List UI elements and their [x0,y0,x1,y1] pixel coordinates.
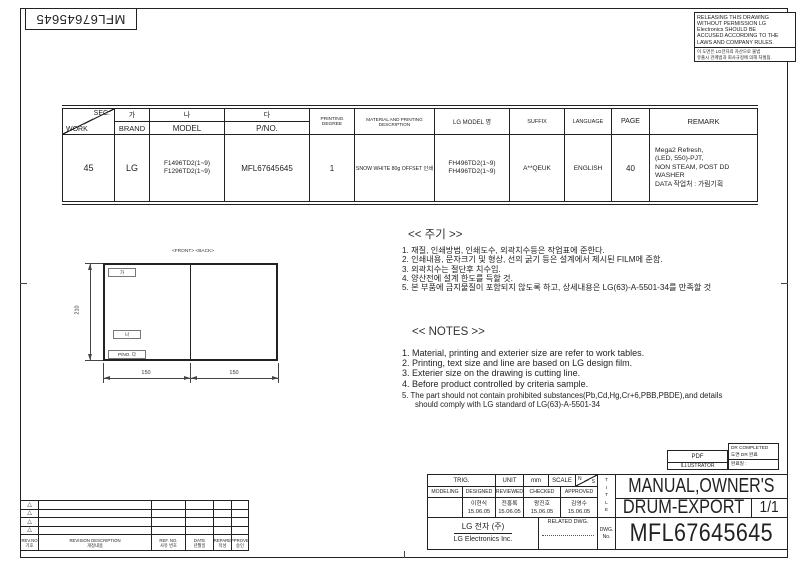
arrow-right-icon [184,376,190,380]
lg-model-header: LG MODEL 명 [435,109,510,135]
model-value: F1496TD2(1~9) F1296TD2(1~9) [150,135,225,201]
page-value: 40 [612,135,650,201]
remark-value: Mega2 Refresh, (LED, 550)-PJT, NON STEAM… [650,135,757,201]
scale-n: N [578,476,582,482]
lg-model-value: FH496TD2(1~9) FH496TD2(1~9) [435,135,510,201]
drawing-sheet: MFL67645645 RELEASING THIS DRAWING WITHO… [0,0,802,567]
dr-date-label: 완료일 : [729,460,778,468]
pno-ko-header: 다 [225,109,310,122]
panel-label-ga-box: 가 [108,268,136,277]
warning-line: LAWS AND COMPANY RULES. [697,40,793,46]
revision-cell [232,518,248,527]
title-vertical-label: T I T L E [598,475,616,518]
checked-header: CHECKED [524,487,561,498]
sheet-number-cell: 1/1 [752,499,787,518]
revision-marker-icon: △ [21,527,39,536]
rev-date-header: DATE 년월일 [186,535,214,550]
scale-header: SCALE [549,475,576,487]
width-dim-left-label: 150 [128,370,164,376]
frame-center-mark-left [20,283,27,284]
warning-box: RELEASING THIS DRAWING WITHOUT PERMISSIO… [694,12,796,62]
warning-english: RELEASING THIS DRAWING WITHOUT PERMISSIO… [695,13,795,48]
panel-label-pno-box: P/NO. 다 [108,350,146,359]
dim-line-vertical [90,264,91,360]
work-table: SEC. WORK 가 BRAND 나 MODEL 다 P/NO. PRINTI… [62,105,758,205]
doc-title-line1: MANUAL,OWNER'S [628,475,774,498]
frame-center-mark-bottom [404,551,405,558]
revision-cell [232,527,248,536]
remark-header: REMARK [650,109,757,135]
designed-header: DESIGNED [463,487,496,498]
language-value: ENGLISH [565,135,612,201]
note-ko-item: 5. 본 부품에 금지물질이 포함되지 않도록 하고, 상세내용은 LG(63)… [402,283,794,292]
revision-description-header: REVISION DESCRIPTION 개정내용 [39,535,152,550]
revision-marker-icon: △ [21,518,39,527]
page-header: PAGE [612,109,650,135]
note-ko-item: 3. 외곽치수는 절단후 치수임. [402,265,794,274]
material-header: MATERIAL AND PRINTING DESCRIPTION [355,109,435,135]
revision-table: △ △ △ △ REV.NO 기호 REVISION DESCRIPTION 개… [20,500,249,551]
rev-no-header: REV.NO 기호 [21,535,39,550]
company-name-ko: LG 전자 (주) [454,521,513,534]
title-block: TRIG. UNIT mm SCALE N S MODELING DESIGNE… [427,474,788,550]
panel-fold-line [190,265,191,359]
related-dwg-dotted-line [542,525,594,536]
dr-completed-ko-label: 도면 DR 완료 [731,452,776,459]
sec-value: 45 [63,135,115,201]
arrow-down-icon [88,354,92,360]
note-en-item: 1. Material, printing and exterier size … [402,348,794,358]
revision-cell [186,510,214,519]
ref-no-header: REF. NO. 사유 번호 [152,535,186,550]
revision-cell [214,501,232,510]
printing-degree-header: PRINTING DEGREE [310,109,355,135]
material-value: SNOW WHITE 80g OFFSET 인쇄 [355,135,435,201]
unit-header: UNIT [496,475,524,487]
language-header: LANGUAGE [565,109,612,135]
reviewed-signer: 전홍록 15.06.05 [496,498,524,518]
scale-s: S [592,479,595,485]
note-en-item: 3. Exterier size on the drawing is cutti… [402,368,794,378]
modeling-signer [428,498,463,518]
panel-label-na-box: 나 [113,330,141,339]
revision-cell [214,518,232,527]
dim-ext-right [278,363,279,383]
pno-header: P/NO. [225,122,310,135]
checked-signer: 왕진호 15.06.05 [524,498,561,518]
trig-header: TRIG. [428,475,496,487]
sec-label: SEC. [94,110,110,117]
revision-cell [39,527,152,536]
work-label: WORK [66,126,88,133]
dim-ext-bottom [85,360,103,361]
unit-value: mm [524,475,549,487]
revision-cell [186,527,214,536]
sec-work-header: SEC. WORK [63,109,115,135]
note-ko-item: 1. 재질, 인쇄방법, 인쇄도수, 외곽치수등은 작업표에 준한다. [402,246,794,255]
revision-cell [39,510,152,519]
revision-cell [39,518,152,527]
warning-line: 유출시 관계법과 회사규정에 의해 처벌됨. [697,55,793,61]
printing-degree-value: 1 [310,135,355,201]
model-header: MODEL [150,122,225,135]
dwg-number: MFL67645645 [630,519,773,548]
revision-cell [186,518,214,527]
reviewed-header: REVIEWED [496,487,524,498]
arrow-left-icon [104,376,110,380]
notes-en-title: << NOTES >> [412,326,485,338]
model-ko-header: 나 [150,109,225,122]
company-name-en: LG Electronics Inc. [454,536,513,543]
pdf-illustrator-box: PDF ILLUSTRATOR [667,450,728,470]
related-dwg-label: RELATED DWG. [548,518,589,525]
revision-cell [152,518,186,527]
suffix-header: SUFFIX [510,109,565,135]
note-en-item: 2. Printing, text size and line are base… [402,358,794,368]
revision-marker-icon: △ [21,510,39,519]
dwg-no-label: DWG. No. [598,518,616,549]
note-en-item: 4. Before product controlled by criteria… [402,379,794,389]
dr-completed-box: DR COMPLETED 도면 DR 완료 완료일 : [728,443,779,470]
pno-value: MFL67645645 [225,135,310,201]
dwg-number-cell: MFL67645645 [616,518,787,549]
title-line1-cell: MANUAL,OWNER'S [616,475,787,499]
notes-ko-list: 1. 재질, 인쇄방법, 인쇄도수, 외곽치수등은 작업표에 준한다. 2. 인… [402,246,794,292]
company-cell: LG 전자 (주) LG Electronics Inc. [428,518,539,549]
brand-header: BRAND [115,122,150,135]
height-dim-label: 210 [75,305,81,314]
prepared-header: PREPARED 작성 [214,535,232,550]
approved-header: APPROVED [561,487,598,498]
panel-label-pno: P/NO. 다 [118,352,136,358]
note-ko-item: 2. 인쇄내용, 문자크기 및 형상, 선의 굵기 등은 설계에서 제시된 FI… [402,255,794,264]
panel-label-ga: 가 [120,270,124,276]
warning-korean: 이 도면은 LG전자의 자산으로 불법 유출시 관계법과 회사규정에 의해 처벌… [695,48,795,61]
approved-header: APPROVED 승인 [232,535,248,550]
rotated-part-number-box: MFL67645645 [25,8,137,30]
revision-cell [214,510,232,519]
dim-ext-left [103,363,104,383]
doc-title-line2: DRUM-EXPORT [623,499,744,518]
revision-cell [39,501,152,510]
brand-ko-header: 가 [115,109,150,122]
brand-value: LG [115,135,150,201]
arrow-right-icon [272,376,278,380]
note-ko-item: 4. 양산전에 설계 한도를 득할 것. [402,274,794,283]
notes-ko-title: << 주기 >> [408,226,462,242]
rotated-part-number: MFL67645645 [36,12,125,27]
pdf-label: PDF [668,451,727,463]
note-en-item: 5. The part should not contain prohibite… [402,391,794,409]
designed-signer: 이현식 15.06.05 [463,498,496,518]
revision-cell [232,501,248,510]
scale-value: N S [576,475,598,487]
title-line2-cell: DRUM-EXPORT [616,499,752,518]
revision-marker-icon: △ [21,501,39,510]
width-dim-right-label: 150 [216,370,252,376]
revision-cell [152,501,186,510]
revision-cell [186,501,214,510]
illustrator-label: ILLUSTRATOR [668,463,727,469]
approved-signer: 김영수 15.06.05 [561,498,598,518]
related-dwg-cell: RELATED DWG. [539,518,598,549]
notes-en-list: 1. Material, printing and exterier size … [402,348,794,409]
revision-cell [214,527,232,536]
revision-cell [152,510,186,519]
revision-cell [152,527,186,536]
front-back-label: <FRONT> <BACK> [148,249,238,254]
suffix-value: A**QEUK [510,135,565,201]
dim-ext-mid [190,363,191,383]
panel-outline [103,263,278,361]
sheet-number: 1/1 [760,499,779,517]
modeling-header: MODELING [428,487,463,498]
arrow-up-icon [88,264,92,270]
panel-label-na: 나 [125,332,129,338]
arrow-left-icon [191,376,197,380]
revision-cell [232,510,248,519]
